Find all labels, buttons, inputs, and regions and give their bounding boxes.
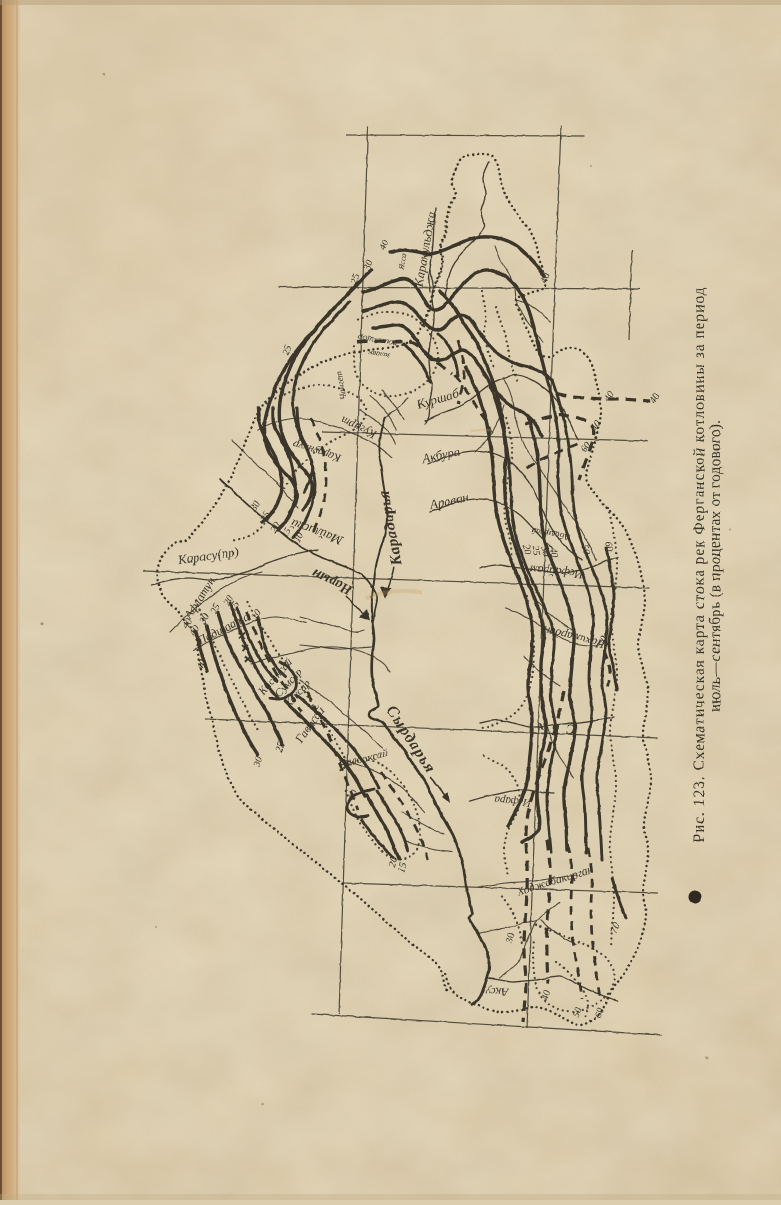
svg-text:С о х: С о х [535, 719, 576, 736]
svg-text:50: 50 [579, 544, 592, 556]
svg-text:Аксу: Аксу [484, 984, 510, 1000]
svg-text:40: 40 [547, 547, 560, 559]
svg-text:июль—сентябрь (в процентах от: июль—сентябрь (в процентах от годового). [707, 420, 724, 712]
svg-text:Рис. 123. Схематическая карта: Рис. 123. Схематическая карта стока рек … [691, 287, 708, 842]
svg-text:60: 60 [602, 541, 615, 553]
